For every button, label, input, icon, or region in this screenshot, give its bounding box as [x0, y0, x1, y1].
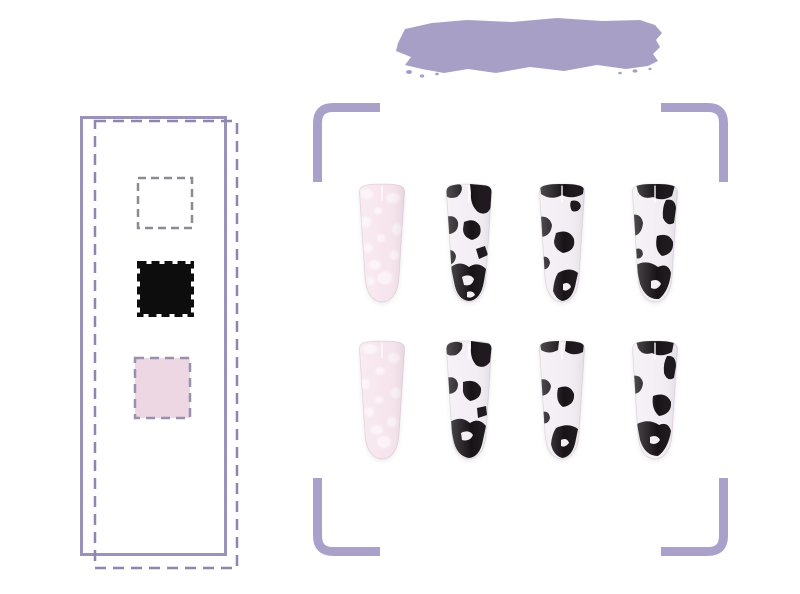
- product-showcase: [0, 0, 800, 594]
- nail-r2c3-cow-print: [536, 337, 588, 465]
- nail-r1c4-cow-print: [629, 180, 681, 308]
- nail-r1c2-cow-print: [443, 180, 495, 308]
- nail-r2c2-cow-print: [443, 337, 495, 465]
- nail-r2c1-pink-marble: [356, 337, 408, 465]
- nail-r2c4-cow-print: [629, 337, 681, 465]
- nail-r1c1-pink-marble: [356, 180, 408, 308]
- nail-r1c3-cow-print: [536, 180, 588, 308]
- nail-grid: [0, 0, 800, 594]
